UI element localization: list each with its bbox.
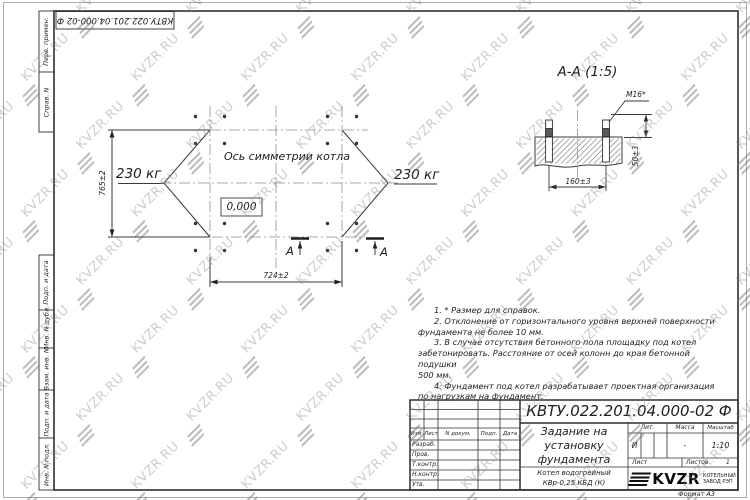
- tb-doc-number: КВТУ.022.201.04.000-02 Ф: [520, 400, 738, 423]
- kvzr-logo-text: KVZR: [652, 470, 700, 488]
- margin-field-boxes: [39, 11, 174, 490]
- drawing-sheet: КВТУ.022.201.04.000-02 Ф Перв. примен. С…: [0, 0, 750, 500]
- tb-row-tkontr: Т.контр.: [412, 460, 438, 470]
- section-dim-height: 50±3: [630, 136, 642, 176]
- field-vzam-inv: Взам. инв. N: [39, 348, 54, 390]
- tb-sheets-label: Листов: [686, 458, 708, 467]
- field-inv-podl: Инв. N подл.: [39, 438, 54, 490]
- notes-block: 1. * Размер для справок. 2. Отклонение о…: [418, 305, 720, 402]
- tb-col-list: Лист: [424, 428, 438, 440]
- tb-title: Задание на установку фундамента: [520, 425, 628, 467]
- tb-title-line: фундамента: [520, 453, 628, 467]
- tb-format: Формат А3: [655, 490, 738, 499]
- tb-col-data: Дата: [500, 428, 520, 440]
- tb-product-line: КВр-0,25 КБД (К): [520, 479, 628, 489]
- tb-row-nkontr: Н.контр.: [412, 470, 439, 480]
- field-inv-dubl: Инв. N дубл.: [39, 310, 54, 348]
- note-line: 500 мм.: [418, 370, 720, 381]
- tb-scale-label: Масштаб: [703, 423, 738, 433]
- tb-row-utv: Утв.: [412, 480, 425, 490]
- tb-col-podp: Подп.: [478, 428, 500, 440]
- note-line: 3. В случае отсутствия бетонного пола пл…: [418, 337, 720, 348]
- note-line: 1. * Размер для справок.: [418, 305, 720, 316]
- tb-product-line: Котел водогрейный: [520, 469, 628, 479]
- top-stamp-doc-number: КВТУ.022.201.04.000-02 Ф: [56, 11, 174, 29]
- kvzr-logo: KVZR КОТЕЛЬНЫЙ ЗАВОД РЭП: [628, 467, 738, 490]
- note-line: 2. Отклонение от горизонтального уровня …: [418, 316, 720, 327]
- note-line: забетонировать. Расстояние от осей колон…: [418, 348, 720, 370]
- section-letter-left: А: [286, 244, 294, 258]
- plan-elevation-value: 0,000: [221, 199, 262, 215]
- tb-mass-label: Масса: [667, 423, 703, 433]
- kvzr-company-line: ЗАВОД РЭП: [703, 479, 736, 485]
- tb-row-prov: Пров.: [412, 450, 429, 460]
- tb-sheets-value: 1: [726, 458, 730, 467]
- field-podp-data-1: Подп. и дата: [39, 255, 54, 310]
- tb-product: Котел водогрейный КВр-0,25 КБД (К): [520, 469, 628, 488]
- plan-dim-horizontal: 724±2: [256, 271, 296, 280]
- plan-weight-right: 230 кг: [394, 167, 439, 183]
- tb-lit-value: И: [628, 433, 641, 458]
- plan-dim-vertical: 765±2: [97, 163, 109, 203]
- tb-title-line: установку: [520, 439, 628, 453]
- field-sprav-n: Справ. N: [39, 72, 54, 132]
- plan-weight-left: 230 кг: [116, 166, 161, 182]
- section-bolt-label: M16*: [626, 90, 646, 99]
- tb-scale-value: 1:10: [703, 433, 738, 458]
- section-letter-right: А: [380, 245, 388, 259]
- tb-sheet-label: Лист: [632, 458, 647, 467]
- tb-col-izm: Изм.: [410, 428, 424, 440]
- note-line: фундамента не более 10 мм.: [418, 327, 720, 338]
- kvzr-company-name: КОТЕЛЬНЫЙ ЗАВОД РЭП: [703, 473, 736, 485]
- section-title: А-А (1:5): [545, 64, 630, 80]
- tb-lit-label: Лит.: [628, 423, 667, 433]
- note-line: 4. Фундамент под котел разрабатывает про…: [418, 381, 720, 392]
- field-podp-data-2: Подп. и дата: [39, 390, 54, 438]
- plan-axis-label: Ось симметрии котла: [224, 150, 350, 163]
- field-perv-primen: Перв. примен.: [39, 11, 54, 72]
- section-dim-spacing: 160±3: [560, 177, 596, 186]
- tb-col-doc: N докум.: [438, 428, 478, 440]
- tb-row-razrab: Разраб.: [412, 440, 436, 450]
- kvzr-logo-icon: [628, 472, 652, 486]
- tb-title-line: Задание на: [520, 425, 628, 439]
- tb-mass-value: -: [667, 433, 703, 458]
